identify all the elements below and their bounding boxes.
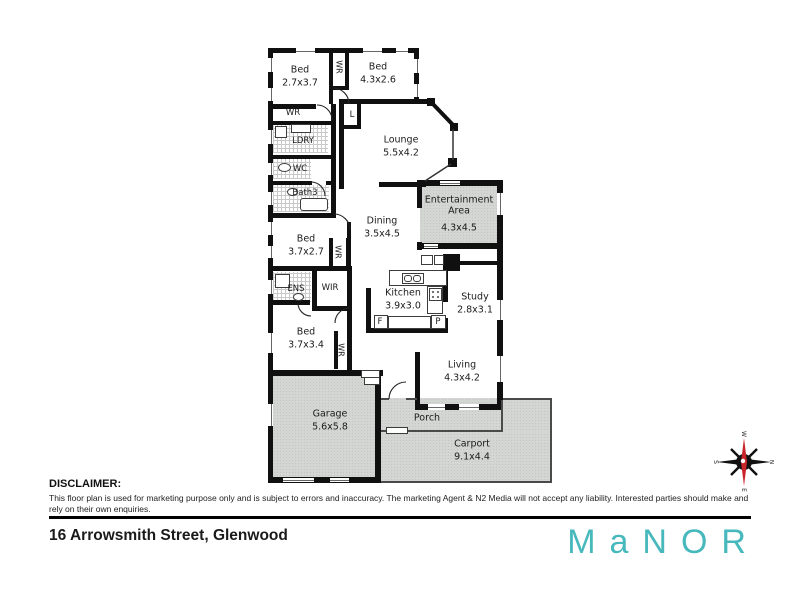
window xyxy=(268,333,273,353)
porch-step xyxy=(386,427,408,434)
wall xyxy=(339,125,361,129)
wall xyxy=(329,48,333,104)
window xyxy=(414,59,419,73)
room-dims-study: 2.8x3.1 xyxy=(457,304,493,315)
room-dims-dining: 3.5x4.5 xyxy=(364,228,400,239)
disclaimer-title: DISCLAIMER: xyxy=(49,478,121,490)
wall xyxy=(268,266,352,271)
carport-floor xyxy=(501,398,552,432)
door-arc xyxy=(317,105,332,120)
door-arc xyxy=(389,382,406,399)
window xyxy=(268,58,273,72)
room-dims-bed-top-left: 2.7x3.7 xyxy=(282,77,318,88)
window xyxy=(440,181,460,185)
label-wir: WIR xyxy=(322,283,339,293)
room-dims-kitchen: 3.9x3.0 xyxy=(385,300,421,311)
compass-letter-south: S xyxy=(714,460,719,464)
window xyxy=(268,192,273,205)
bay-corner xyxy=(450,123,458,131)
room-label-living: Living xyxy=(448,359,476,370)
stove-icon xyxy=(429,288,442,301)
window xyxy=(424,244,438,248)
room-label-bed-top: Bed xyxy=(369,61,387,72)
label-fridge: F xyxy=(378,317,383,327)
wall xyxy=(329,86,349,90)
wall xyxy=(347,222,351,268)
compass-needle xyxy=(741,462,747,486)
wall xyxy=(329,238,333,266)
label-wr: WR xyxy=(334,245,343,258)
wall xyxy=(268,372,273,483)
room-label-study: Study xyxy=(461,291,488,302)
kitchen-island xyxy=(388,316,431,329)
label-laundry: LDRY xyxy=(292,136,314,146)
wall xyxy=(268,300,310,305)
porch-edge xyxy=(381,398,389,400)
porch-edge xyxy=(406,398,417,400)
wall xyxy=(415,352,420,410)
room-label-carport: Carport xyxy=(454,438,490,449)
wall xyxy=(268,155,332,159)
window xyxy=(428,404,445,410)
disclaimer-text: This floor plan is used for marketing pu… xyxy=(49,493,754,515)
angled-window xyxy=(425,164,451,181)
room-dims-carport: 9.1x4.4 xyxy=(454,451,490,462)
wall xyxy=(312,306,352,311)
wall xyxy=(345,48,349,90)
room-label-porch: Porch xyxy=(414,412,440,423)
carport-edge xyxy=(381,481,552,483)
wall xyxy=(312,270,317,308)
compass-needle xyxy=(741,438,747,462)
room-label-kitchen: Kitchen xyxy=(385,287,421,298)
wall xyxy=(347,270,352,310)
wall xyxy=(459,261,501,265)
window xyxy=(268,222,273,235)
bathtub xyxy=(300,198,328,211)
compass-center-dot xyxy=(741,459,745,463)
room-label-entertainment: Entertainment Area xyxy=(414,195,504,218)
room-label-bed-mid: Bed xyxy=(297,233,315,244)
bay-wall xyxy=(431,102,455,127)
brand-logo: MaNOR xyxy=(567,523,760,562)
label-wr: WR xyxy=(335,60,344,73)
garage-door-post xyxy=(314,477,330,483)
window xyxy=(268,163,273,175)
label-wc: WC xyxy=(293,164,307,174)
wall xyxy=(347,310,352,372)
window xyxy=(414,84,419,97)
label-wr: WR xyxy=(337,343,346,356)
carport-edge xyxy=(503,398,552,400)
room-dims-garage: 5.6x5.8 xyxy=(312,421,348,432)
window xyxy=(497,300,503,320)
laundry-tub xyxy=(275,126,287,138)
room-dims-lounge: 5.5x4.2 xyxy=(383,147,419,158)
room-label-bed-top-left: Bed xyxy=(291,64,309,75)
room-dims-living: 4.3x4.2 xyxy=(444,372,480,383)
compass-letter-west: W xyxy=(740,431,747,437)
room-dims-bed-mid: 3.7x2.7 xyxy=(288,246,324,257)
garage-steps xyxy=(364,377,380,385)
room-dims-bed-top: 4.3x2.6 xyxy=(360,74,396,85)
wall xyxy=(268,213,332,218)
window xyxy=(396,48,408,53)
wall xyxy=(339,99,433,104)
label-linen: L xyxy=(350,110,355,120)
room-label-lounge: Lounge xyxy=(384,134,419,145)
washer xyxy=(291,124,311,133)
toilet xyxy=(278,163,291,172)
compass-letter-north: N xyxy=(768,460,774,465)
window xyxy=(268,280,273,294)
label-pantry: P xyxy=(435,317,440,327)
room-label-dining: Dining xyxy=(367,215,398,226)
window xyxy=(459,404,479,410)
window xyxy=(268,88,273,101)
compass-icon: W E S N xyxy=(714,431,774,493)
room-dims-entertainment: 4.3x4.5 xyxy=(441,222,477,233)
bay-corner xyxy=(448,158,457,167)
label-wr: WR xyxy=(286,108,300,118)
footer-divider xyxy=(49,516,751,519)
kitchen-sink-bowl xyxy=(404,275,412,282)
room-label-bed-lower: Bed xyxy=(297,326,315,337)
wall xyxy=(375,370,381,483)
label-bath3: Bath3 xyxy=(292,188,317,198)
window xyxy=(268,246,273,258)
wall xyxy=(443,254,460,271)
property-address: 16 Arrowsmith Street, Glenwood xyxy=(49,527,288,545)
bbq-bench xyxy=(421,255,433,265)
porch-edge xyxy=(501,400,503,430)
bbq-bench xyxy=(434,255,444,265)
floor-plan-page: Bed 2.7x3.7 Bed 4.3x2.6 Lounge 5.5x4.2 D… xyxy=(0,0,800,600)
wall xyxy=(366,288,371,333)
toilet xyxy=(293,293,304,301)
compass-letter-east: E xyxy=(740,488,747,492)
window xyxy=(363,48,382,53)
label-ensuite: ENS xyxy=(287,284,304,294)
window xyxy=(497,356,503,382)
wall xyxy=(339,99,344,189)
wall xyxy=(326,181,332,185)
window xyxy=(296,48,315,53)
room-label-garage: Garage xyxy=(313,408,348,419)
room-dims-bed-lower: 3.7x3.4 xyxy=(288,339,324,350)
carport-edge xyxy=(550,398,552,483)
kitchen-sink-bowl xyxy=(413,275,421,282)
stove-burner xyxy=(432,291,434,293)
wall xyxy=(268,181,312,185)
window xyxy=(268,130,273,144)
window xyxy=(268,404,273,426)
